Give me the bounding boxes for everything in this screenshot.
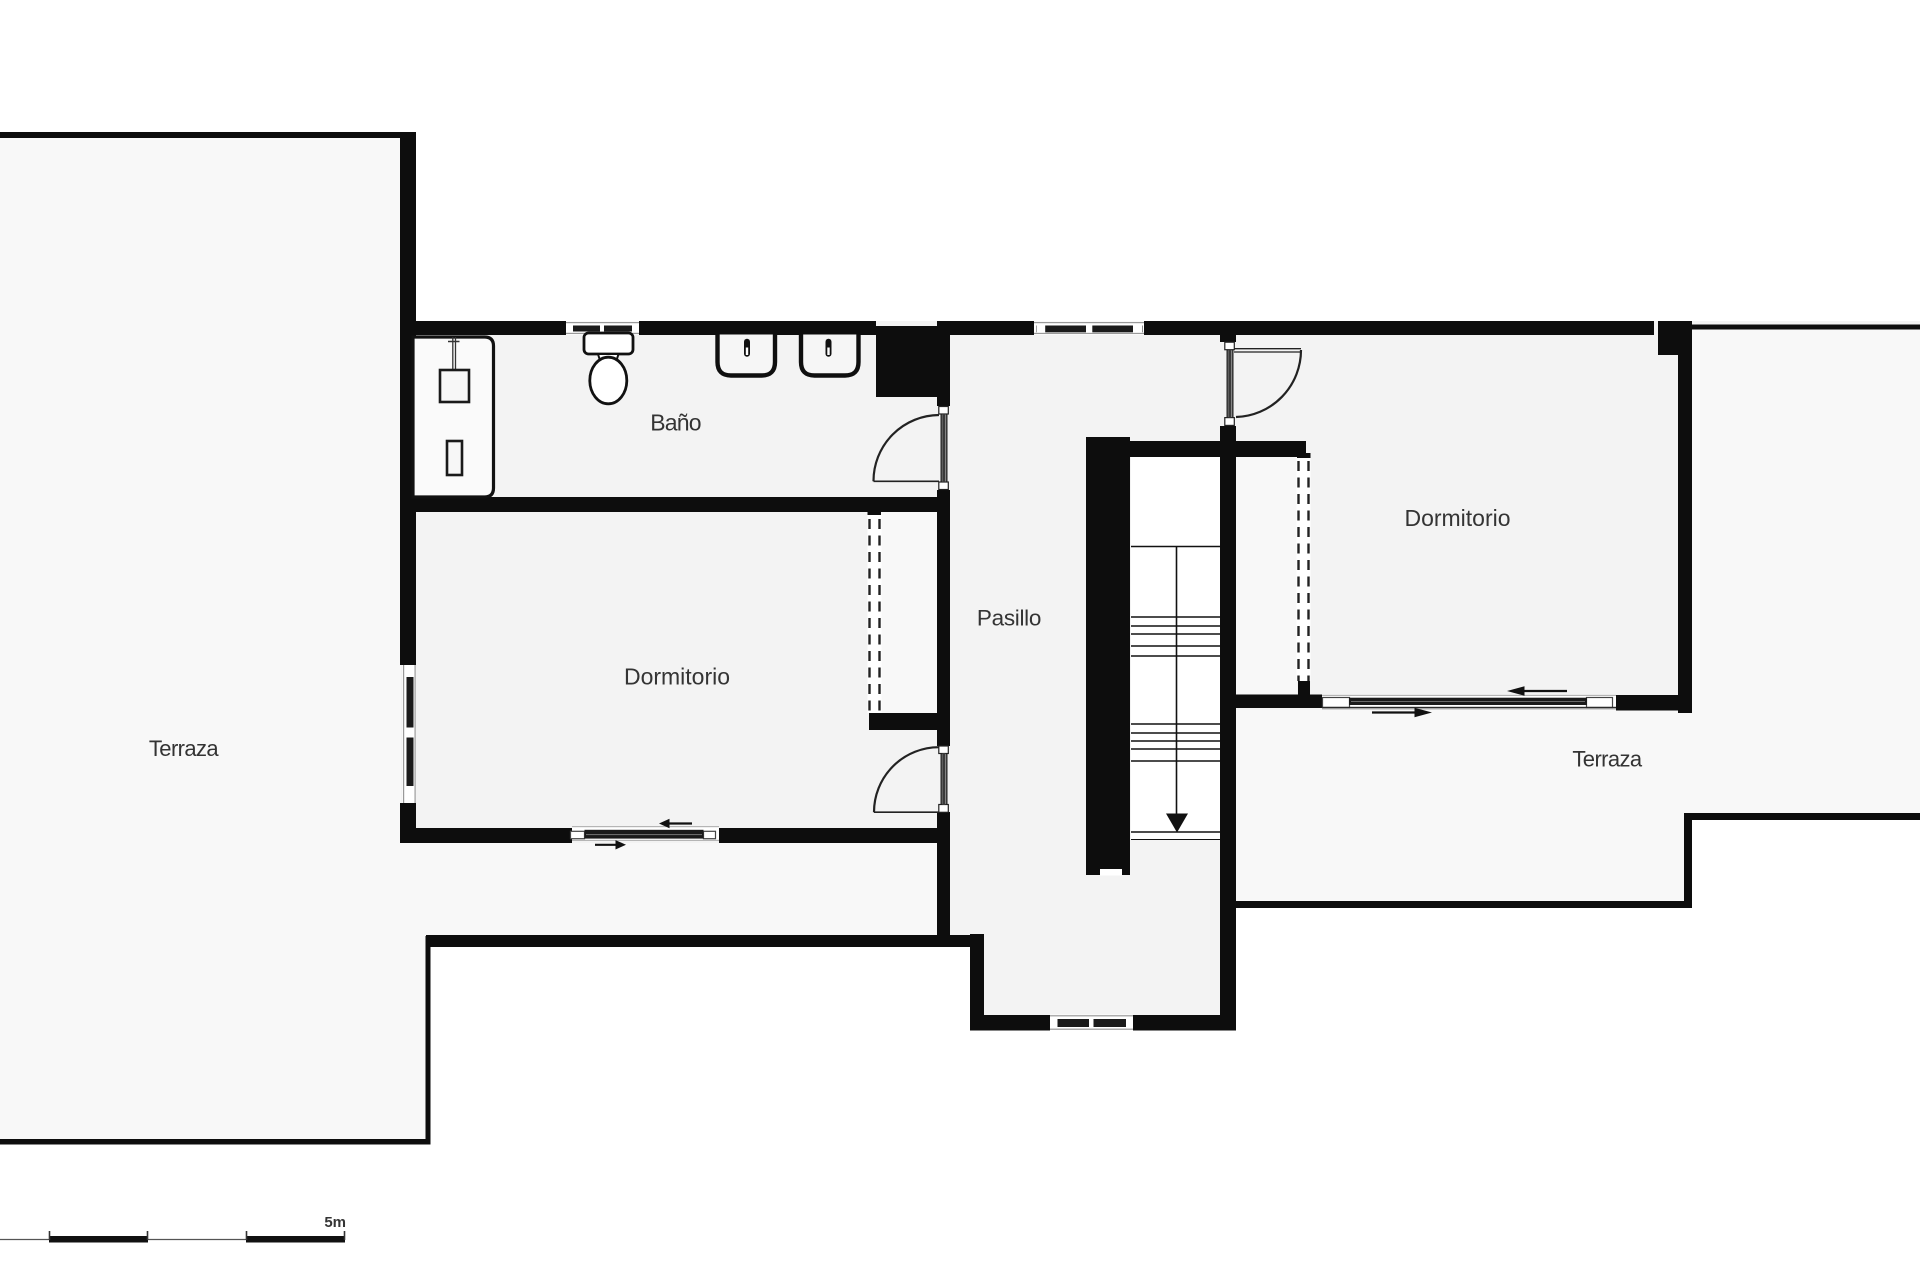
svg-text:Dormitorio: Dormitorio — [624, 664, 730, 690]
svg-text:Terraza: Terraza — [149, 736, 220, 761]
svg-text:Dormitorio: Dormitorio — [1404, 505, 1510, 531]
svg-text:Terraza: Terraza — [1572, 747, 1643, 772]
svg-text:Baño: Baño — [650, 410, 701, 436]
svg-text:Pasillo: Pasillo — [977, 606, 1041, 631]
svg-text:5m: 5m — [324, 1214, 346, 1231]
